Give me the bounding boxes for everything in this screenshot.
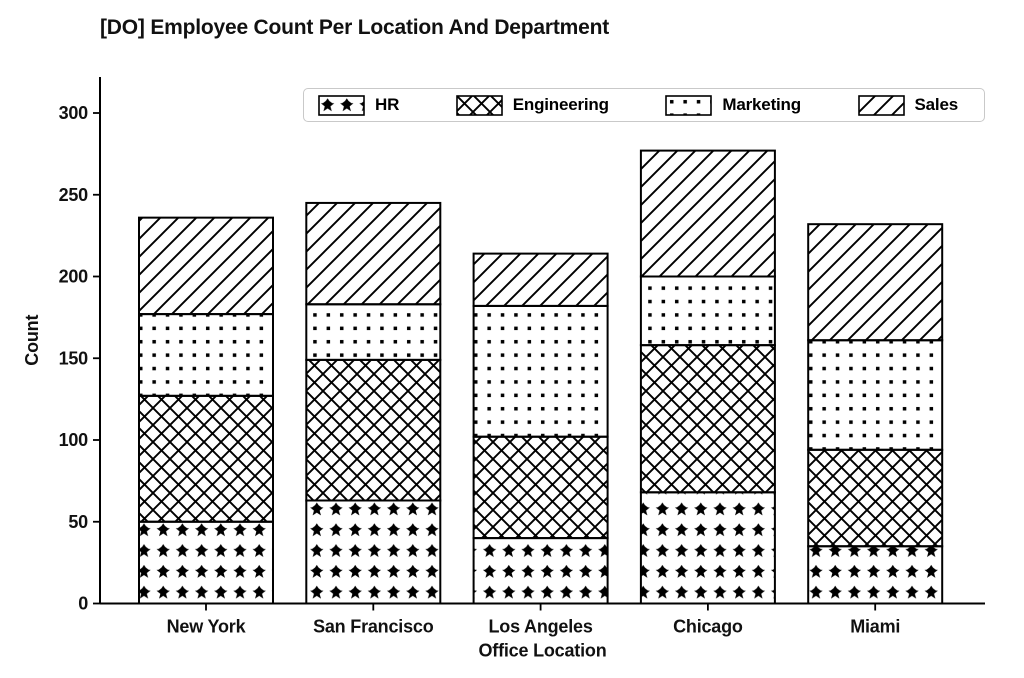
- legend: HR Engineering Marketing Sales: [303, 88, 985, 122]
- legend-swatch-dots-icon: [665, 95, 712, 116]
- y-tick-label-100: 100: [59, 430, 89, 450]
- bar-segment-los-angeles-hr: [474, 538, 608, 603]
- bar-segment-chicago-marketing: [641, 277, 775, 346]
- x-tick-label-chicago: Chicago: [673, 617, 743, 637]
- bar-segment-san-francisco-sales: [306, 203, 440, 304]
- legend-label: Sales: [915, 95, 958, 115]
- x-tick-label-new-york: New York: [167, 617, 247, 637]
- legend-swatch-diagonal-icon: [858, 95, 905, 116]
- bar-segment-miami-marketing: [808, 340, 942, 450]
- bar-segment-san-francisco-engineering: [306, 360, 440, 501]
- bar-segment-san-francisco-hr: [306, 500, 440, 603]
- legend-item-marketing: Marketing: [665, 95, 801, 116]
- y-tick-label-200: 200: [59, 267, 89, 287]
- y-tick-label-150: 150: [59, 348, 89, 368]
- y-tick-label-50: 50: [68, 512, 88, 532]
- bar-segment-chicago-sales: [641, 151, 775, 277]
- legend-item-sales: Sales: [858, 95, 958, 116]
- legend-item-engineering: Engineering: [456, 95, 609, 116]
- bar-segment-los-angeles-marketing: [474, 306, 608, 437]
- bar-segment-new-york-hr: [139, 522, 273, 604]
- bar-segment-miami-engineering: [808, 450, 942, 546]
- x-axis-label: Office Location: [478, 641, 606, 661]
- y-tick-label-300: 300: [59, 103, 89, 123]
- bar-segment-new-york-marketing: [139, 314, 273, 396]
- legend-swatch-stars-icon: [318, 95, 365, 116]
- bar-segment-los-angeles-engineering: [474, 437, 608, 538]
- bar-segment-miami-sales: [808, 224, 942, 340]
- bar-segment-new-york-sales: [139, 218, 273, 314]
- y-tick-label-250: 250: [59, 185, 89, 205]
- x-tick-label-san-francisco: San Francisco: [313, 617, 434, 637]
- bar-segment-san-francisco-marketing: [306, 304, 440, 360]
- legend-label: HR: [375, 95, 399, 115]
- x-tick-label-miami: Miami: [850, 617, 900, 637]
- bar-segment-chicago-engineering: [641, 345, 775, 492]
- y-tick-label-0: 0: [78, 594, 88, 614]
- bar-segment-los-angeles-sales: [474, 254, 608, 306]
- bar-segment-new-york-engineering: [139, 396, 273, 522]
- legend-item-hr: HR: [318, 95, 399, 116]
- legend-swatch-crosshatch-icon: [456, 95, 503, 116]
- x-tick-label-los-angeles: Los Angeles: [489, 617, 593, 637]
- bar-segment-chicago-hr: [641, 492, 775, 603]
- legend-label: Engineering: [513, 95, 609, 115]
- y-axis-label: Count: [22, 315, 42, 366]
- legend-label: Marketing: [722, 95, 801, 115]
- bar-segment-miami-hr: [808, 546, 942, 603]
